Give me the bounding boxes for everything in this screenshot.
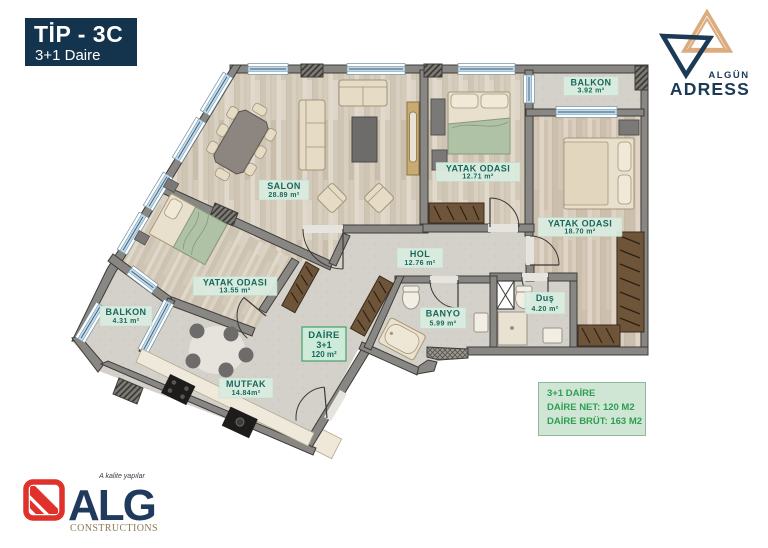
svg-text:4.20 m²: 4.20 m² <box>532 306 559 313</box>
svg-text:3.92 m²: 3.92 m² <box>578 88 605 95</box>
svg-text:BALKON: BALKON <box>571 78 612 88</box>
svg-text:YATAK ODASI: YATAK ODASI <box>203 278 267 288</box>
svg-text:A kalite yapılar: A kalite yapılar <box>98 473 145 480</box>
svg-text:BALKON: BALKON <box>106 307 147 317</box>
svg-text:120 m²: 120 m² <box>311 350 337 359</box>
svg-text:SALON: SALON <box>267 181 301 191</box>
svg-text:YATAK ODASI: YATAK ODASI <box>446 164 510 174</box>
svg-text:4.31 m²: 4.31 m² <box>113 318 140 325</box>
svg-text:ADRESS: ADRESS <box>670 79 750 99</box>
svg-text:12.76 m²: 12.76 m² <box>404 260 435 267</box>
svg-text:BANYO: BANYO <box>426 309 461 319</box>
svg-text:CONSTRUCTIONS: CONSTRUCTIONS <box>70 523 158 534</box>
svg-text:3+1: 3+1 <box>316 340 331 350</box>
svg-text:MUTFAK: MUTFAK <box>226 379 266 389</box>
svg-text:12.71 m²: 12.71 m² <box>462 174 493 181</box>
svg-text:13.55 m²: 13.55 m² <box>219 288 250 295</box>
svg-text:18.70 m²: 18.70 m² <box>564 229 595 236</box>
svg-text:28.89 m²: 28.89 m² <box>268 192 299 199</box>
svg-text:Duş: Duş <box>536 293 554 303</box>
svg-text:14.84m²: 14.84m² <box>232 390 261 397</box>
svg-text:YATAK ODASI: YATAK ODASI <box>548 219 612 229</box>
svg-text:5.99 m²: 5.99 m² <box>430 321 457 328</box>
svg-text:HOL: HOL <box>410 249 430 259</box>
